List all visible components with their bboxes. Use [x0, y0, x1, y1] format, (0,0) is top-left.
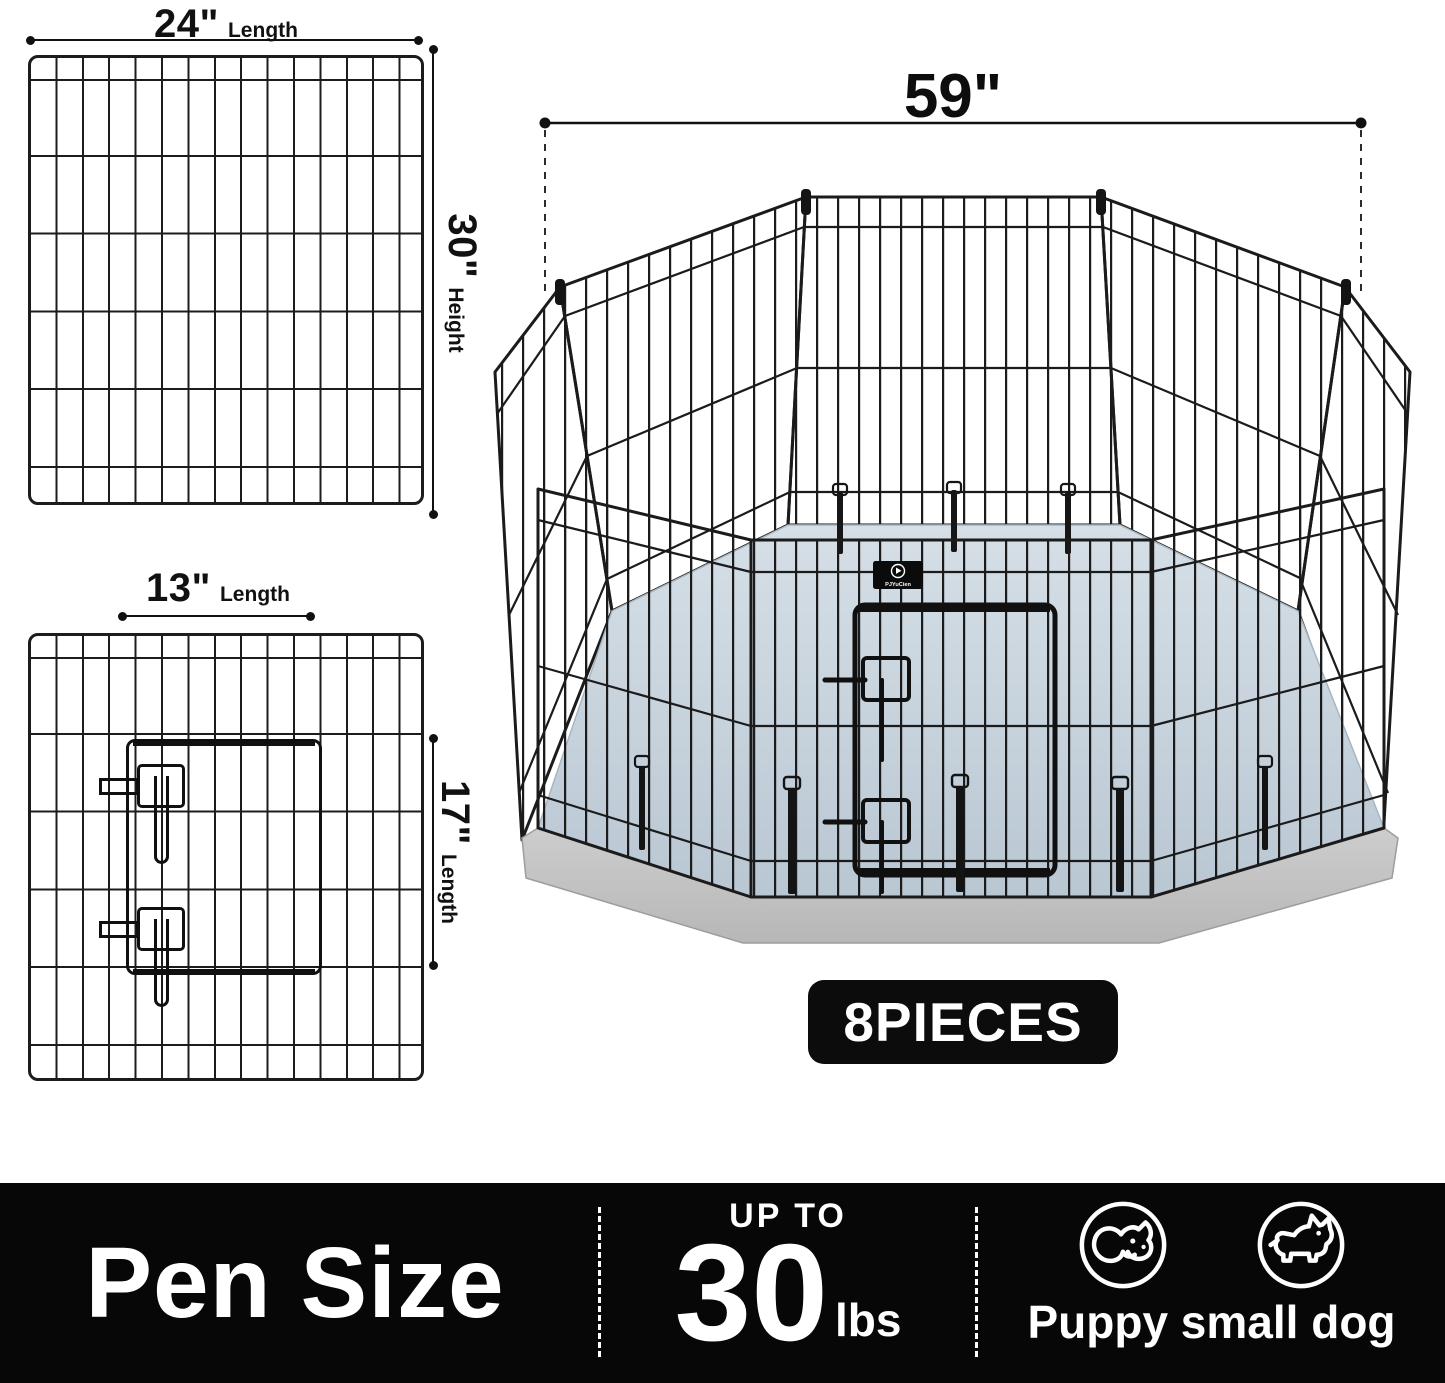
latch-pin	[154, 776, 169, 864]
dim-dot	[429, 961, 438, 970]
door-length-unit: Length	[220, 583, 290, 607]
dim-dot	[26, 36, 35, 45]
wire-panel-door	[28, 633, 424, 1081]
door-length-dim-line	[124, 615, 310, 617]
latch-bar	[99, 778, 139, 795]
brand-logo-text: PJYuCien	[885, 582, 911, 588]
door-height-unit: Length	[436, 854, 460, 924]
door-height-value: 17"	[432, 780, 477, 845]
dim-dot	[118, 612, 127, 621]
full-panel-height-value: 30"	[439, 213, 484, 278]
pieces-badge-label: 8PIECES	[843, 990, 1082, 1054]
full-panel-length-dim-line	[32, 39, 418, 41]
small-dog-icon	[1254, 1198, 1348, 1292]
door-height-dim-line	[432, 740, 434, 964]
brand-logo-plate: PJYuCien	[873, 561, 923, 589]
product-dimension-infographic: 24" Length 30" Height 13" Length	[0, 0, 1445, 1383]
dim-dot	[306, 612, 315, 621]
weight-unit: lbs	[835, 1293, 901, 1347]
pen-3d-illustration: PJYuCien 59"	[480, 40, 1445, 1000]
dim-dot	[414, 36, 423, 45]
door-height-label: 17" Length	[437, 752, 477, 952]
weight-capacity-block: UP TO 30 lbs	[601, 1183, 975, 1383]
weight-value: 30	[675, 1228, 829, 1359]
dim-dot	[429, 45, 438, 54]
door-length-label: 13" Length	[28, 566, 408, 611]
wire-panel-full	[28, 55, 424, 505]
full-panel-height-dim-line	[432, 51, 434, 513]
full-panel-height-unit: Height	[443, 287, 467, 352]
pet-type-label: Puppy small dog	[1027, 1295, 1395, 1349]
pen-size-title: Pen Size	[0, 1183, 590, 1383]
door-latch	[99, 907, 209, 957]
full-panel-height-label: 30" Height	[440, 173, 484, 393]
dim-dot	[429, 734, 438, 743]
door-latch	[99, 764, 209, 814]
latch-bar	[99, 921, 139, 938]
latch-pin	[154, 919, 169, 1007]
footer-banner: Pen Size UP TO 30 lbs	[0, 1183, 1445, 1383]
door-length-value: 13"	[146, 566, 211, 611]
pen-width-value: 59"	[904, 62, 1002, 131]
dim-dot	[429, 510, 438, 519]
pet-type-block: Puppy small dog	[978, 1183, 1445, 1383]
pieces-badge: 8PIECES	[808, 980, 1118, 1064]
panel-door-frame	[126, 739, 322, 975]
puppy-face-icon	[1076, 1198, 1170, 1292]
